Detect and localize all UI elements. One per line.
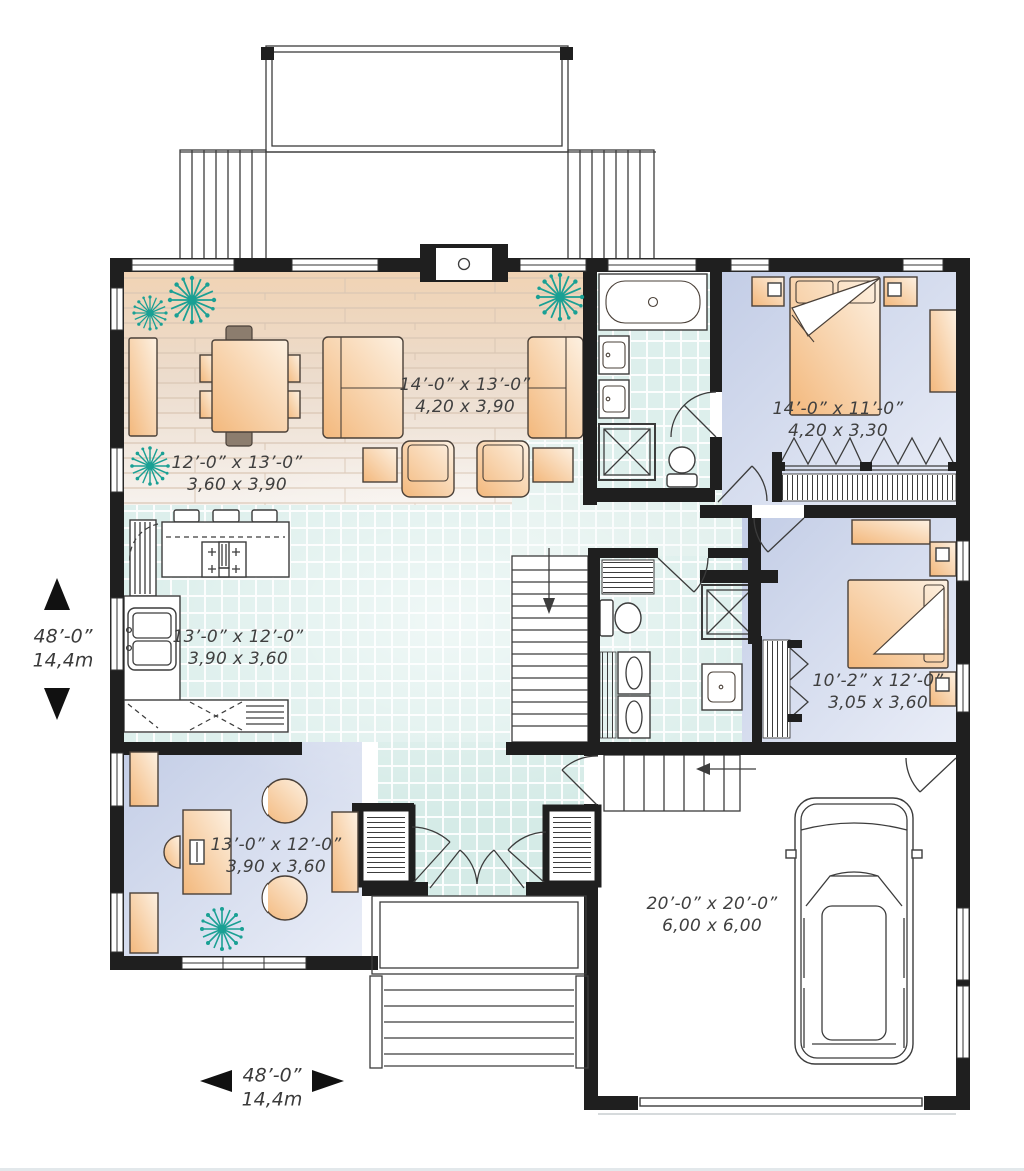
car	[786, 798, 922, 1064]
deck-post	[261, 47, 274, 60]
entry-closet	[360, 808, 412, 884]
bookcase	[130, 752, 158, 806]
overall-width-label: 48’-0” 14,4m	[242, 1064, 303, 1112]
arrow-down-icon	[44, 688, 70, 720]
dining-room-metric: 3,60 x 3,90	[172, 474, 303, 496]
side-table	[363, 448, 397, 482]
living-room-metric: 4,20 x 3,90	[400, 396, 531, 418]
bed	[790, 277, 880, 415]
rear-deck	[180, 46, 656, 260]
dining-room-imperial: 12’-0” x 13’-0”	[172, 452, 303, 474]
floor-plan-drawing	[0, 0, 1024, 1171]
toilet	[600, 600, 641, 636]
dining-room-furniture	[129, 326, 300, 446]
deck-stairs-left	[180, 150, 266, 260]
arrow-left-icon	[200, 1070, 232, 1092]
kitchen-label: 13’-0” x 12’-0” 3,90 x 3,60	[173, 626, 304, 670]
overall-depth-metric: 14,4m	[33, 649, 94, 673]
side-table	[533, 448, 573, 482]
cooktop	[202, 542, 246, 577]
floor-plan-page: 14’-0” x 13’-0” 4,20 x 3,90 12’-0” x 13’…	[0, 0, 1024, 1171]
dining-table	[212, 340, 288, 432]
master-bedroom-metric: 4,20 x 3,30	[773, 420, 904, 442]
arrow-right-icon	[312, 1070, 344, 1092]
dining-room-label: 12’-0” x 13’-0” 3,60 x 3,90	[172, 452, 303, 496]
kitchen-metric: 3,90 x 3,60	[173, 648, 304, 670]
garage	[598, 798, 956, 1114]
bathtub	[599, 274, 707, 330]
sofa	[323, 337, 403, 438]
bed	[848, 580, 948, 668]
overall-depth-label: 48’-0” 14,4m	[33, 625, 94, 673]
guest-chair	[262, 876, 307, 920]
kitchen-imperial: 13’-0” x 12’-0”	[173, 626, 304, 648]
arrow-up-icon	[44, 578, 70, 610]
buffet	[129, 338, 157, 436]
garage-metric: 6,00 x 6,00	[647, 915, 778, 937]
living-room-label: 14’-0” x 13’-0” 4,20 x 3,90	[400, 374, 531, 418]
bedroom2-imperial: 10’-2” x 12’-0”	[813, 670, 944, 692]
rear-stoop	[408, 244, 520, 282]
overall-depth-imperial: 48’-0”	[33, 625, 94, 649]
bedroom2-metric: 3,05 x 3,60	[813, 692, 944, 714]
office-metric: 3,90 x 3,60	[211, 856, 342, 878]
entry-closet	[546, 808, 598, 884]
office-label: 13’-0” x 12’-0” 3,90 x 3,60	[211, 834, 342, 878]
linen-closet	[602, 560, 654, 594]
master-bedroom-label: 14’-0” x 11’-0” 4,20 x 3,30	[773, 398, 904, 442]
deck-stairs-right	[568, 150, 654, 260]
front-porch	[370, 896, 588, 1068]
overall-width-imperial: 48’-0”	[242, 1064, 303, 1088]
garage-imperial: 20’-0” x 20’-0”	[647, 893, 778, 915]
stool	[252, 510, 277, 522]
kitchen-counter	[124, 700, 288, 732]
overall-width-metric: 14,4m	[242, 1088, 303, 1112]
stool	[174, 510, 199, 522]
sofa	[528, 337, 583, 438]
dresser	[930, 310, 957, 392]
living-room-imperial: 14’-0” x 13’-0”	[400, 374, 531, 396]
entry-arrow-icon	[696, 763, 710, 775]
toilet	[667, 447, 697, 487]
vanity-sink	[702, 664, 742, 710]
porch-steps	[384, 990, 574, 1066]
guest-chair	[262, 779, 307, 823]
garage-door	[640, 1098, 922, 1106]
armchair	[402, 441, 454, 497]
kitchen-sink	[127, 608, 176, 670]
stool	[213, 510, 239, 522]
bookcase	[130, 893, 158, 953]
master-bedroom-imperial: 14’-0” x 11’-0”	[773, 398, 904, 420]
deck-post	[560, 47, 573, 60]
office-imperial: 13’-0” x 12’-0”	[211, 834, 342, 856]
armchair	[477, 441, 529, 497]
dresser	[852, 520, 930, 544]
bedroom2-label: 10’-2” x 12’-0” 3,05 x 3,60	[813, 670, 944, 714]
garage-label: 20’-0” x 20’-0” 6,00 x 6,00	[647, 893, 778, 937]
